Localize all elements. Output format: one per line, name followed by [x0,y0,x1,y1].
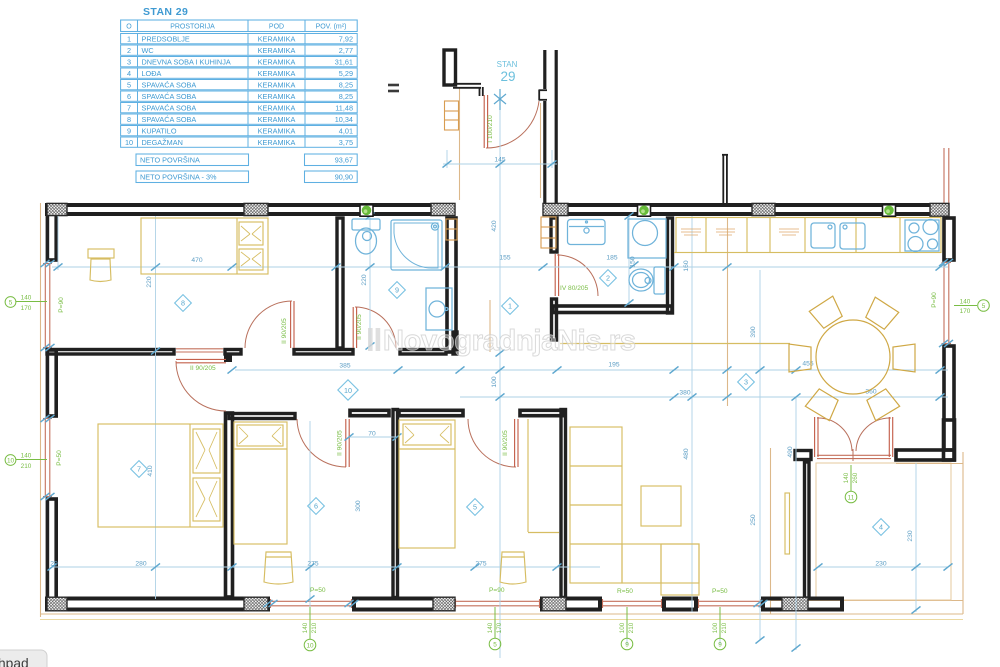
svg-text:II 90/205: II 90/205 [337,430,344,456]
svg-text:2,77: 2,77 [339,46,353,55]
svg-text:140: 140 [302,622,309,633]
svg-text:7,92: 7,92 [339,35,353,44]
svg-text:PREDSOBLJE: PREDSOBLJE [142,35,190,44]
svg-text:11,48: 11,48 [335,104,353,113]
svg-text:11: 11 [848,494,855,501]
svg-text:380: 380 [679,390,690,397]
svg-text:NovogradnjaNis.rs: NovogradnjaNis.rs [383,325,636,357]
svg-text:100: 100 [491,376,498,387]
svg-text:KERAMIKA: KERAMIKA [258,46,296,55]
svg-text:KUPATILO: KUPATILO [142,127,177,136]
svg-text:5,29: 5,29 [339,69,353,78]
svg-text:9: 9 [395,286,399,295]
svg-text:100: 100 [712,622,719,633]
svg-text:455: 455 [802,361,813,368]
svg-text:KERAMIKA: KERAMIKA [258,138,296,147]
svg-text:LOĐA: LOĐA [142,69,162,78]
svg-text:230: 230 [875,561,886,568]
svg-text:100: 100 [619,622,626,633]
svg-text:2: 2 [606,274,610,283]
svg-text:6: 6 [127,92,131,101]
svg-text:90,90: 90,90 [335,173,353,182]
svg-text:KERAMIKA: KERAMIKA [258,69,296,78]
svg-text:SPAVAĆA SOBA: SPAVAĆA SOBA [142,104,197,113]
svg-text:P=50: P=50 [56,450,63,466]
svg-text:DNEVNA SOBA I KUHINJA: DNEVNA SOBA I KUHINJA [142,58,231,67]
svg-text:P=90: P=90 [489,587,505,594]
svg-text:160: 160 [683,260,690,271]
svg-text:9: 9 [625,641,629,648]
svg-text:6: 6 [314,502,318,511]
svg-text:275: 275 [475,561,486,568]
svg-text:I 100/210: I 100/210 [487,115,494,143]
svg-text:4: 4 [127,69,131,78]
svg-text:385: 385 [339,363,350,370]
svg-text:10: 10 [7,457,15,464]
svg-text:250: 250 [750,514,757,525]
svg-text:1: 1 [127,35,131,44]
svg-text:490: 490 [787,446,794,457]
svg-text:3: 3 [744,378,748,387]
svg-text:II 90/205: II 90/205 [190,365,216,372]
svg-text:3,75: 3,75 [339,138,353,147]
svg-text:KERAMIKA: KERAMIKA [258,115,296,124]
svg-text:140: 140 [487,622,494,633]
svg-text:10: 10 [125,138,133,147]
svg-text:KERAMIKA: KERAMIKA [258,127,296,136]
svg-text:5: 5 [9,299,13,306]
svg-text:29: 29 [500,69,515,84]
svg-text:210: 210 [311,622,318,633]
svg-text:P=90: P=90 [931,292,938,308]
svg-text:480: 480 [683,448,690,459]
svg-text:R=50: R=50 [617,588,633,595]
svg-text:10,34: 10,34 [335,115,353,124]
svg-text:4,01: 4,01 [339,127,353,136]
svg-text:260: 260 [852,472,859,483]
svg-text:NETO POVRŠINA - 3%: NETO POVRŠINA - 3% [140,173,217,182]
svg-text:210: 210 [21,463,32,470]
svg-text:420: 420 [491,220,498,231]
svg-text:4: 4 [879,523,883,532]
svg-text:II 90/205: II 90/205 [281,318,288,344]
svg-text:P=50: P=50 [310,587,326,594]
svg-text:9: 9 [127,127,131,136]
svg-text:210: 210 [721,622,728,633]
svg-text:170: 170 [960,308,971,315]
svg-text:KERAMIKA: KERAMIKA [258,35,296,44]
svg-text:5: 5 [982,303,986,310]
svg-text:5: 5 [473,503,477,512]
svg-text:7: 7 [127,104,131,113]
svg-text:STAN: STAN [497,60,518,69]
svg-text:20: 20 [50,561,58,568]
svg-text:70: 70 [368,431,376,438]
svg-text:470: 470 [191,257,202,264]
svg-text:220: 220 [361,274,368,285]
svg-text:9: 9 [718,641,722,648]
svg-text:210: 210 [628,622,635,633]
svg-text:5: 5 [127,81,131,90]
svg-text:8,25: 8,25 [339,92,353,101]
svg-text:410: 410 [147,465,154,476]
svg-text:140: 140 [843,472,850,483]
svg-text:3: 3 [127,58,131,67]
svg-text:WC: WC [142,46,154,55]
svg-text:POV. (m²): POV. (m²) [316,24,347,31]
svg-text:II 90/205: II 90/205 [356,314,363,340]
svg-text:PROSTORIJA: PROSTORIJA [170,24,215,31]
svg-text:140: 140 [960,299,971,306]
svg-text:155: 155 [499,255,510,262]
svg-text:SPAVAĆA SOBA: SPAVAĆA SOBA [142,81,197,90]
svg-text:93,67: 93,67 [335,156,353,165]
svg-text:KERAMIKA: KERAMIKA [258,92,296,101]
svg-text:KERAMIKA: KERAMIKA [258,104,296,113]
svg-text:170: 170 [21,305,32,312]
svg-text:8: 8 [127,115,131,124]
svg-text:POD: POD [269,24,284,31]
svg-text:II 90/205: II 90/205 [502,430,509,456]
svg-text:300: 300 [355,500,362,511]
svg-text:STAN 29: STAN 29 [143,6,188,18]
svg-text:185: 185 [606,255,617,262]
svg-text:P=50: P=50 [712,588,728,595]
svg-text:SPAVAĆA SOBA: SPAVAĆA SOBA [142,92,197,101]
svg-text:10: 10 [306,642,314,649]
svg-text:230: 230 [907,530,914,541]
svg-text:hpad: hpad [0,656,29,667]
svg-text:KERAMIKA: KERAMIKA [258,81,296,90]
svg-text:275: 275 [307,561,318,568]
svg-text:280: 280 [135,561,146,568]
svg-text:DEGAŽMAN: DEGAŽMAN [142,138,183,147]
svg-text:10: 10 [344,386,352,395]
svg-text:7: 7 [137,465,141,474]
svg-text:SPAVAĆA SOBA: SPAVAĆA SOBA [142,115,197,124]
svg-text:1: 1 [508,302,512,311]
svg-text:195: 195 [608,362,619,369]
svg-text:IV 80/205: IV 80/205 [560,285,589,292]
svg-text:145: 145 [494,157,505,164]
svg-text:140: 140 [21,295,32,302]
svg-text:140: 140 [21,453,32,460]
svg-text:2: 2 [127,46,131,55]
svg-text:5: 5 [493,641,497,648]
svg-text:P=90: P=90 [58,297,65,313]
svg-text:O: O [126,24,132,31]
svg-text:31,61: 31,61 [335,58,353,67]
svg-text:220: 220 [146,276,153,287]
svg-text:390: 390 [750,326,757,337]
svg-text:8,25: 8,25 [339,81,353,90]
svg-text:170: 170 [496,622,503,633]
svg-text:8: 8 [181,299,185,308]
svg-text:NETO POVRŠINA: NETO POVRŠINA [140,156,200,165]
svg-text:KERAMIKA: KERAMIKA [258,58,296,67]
